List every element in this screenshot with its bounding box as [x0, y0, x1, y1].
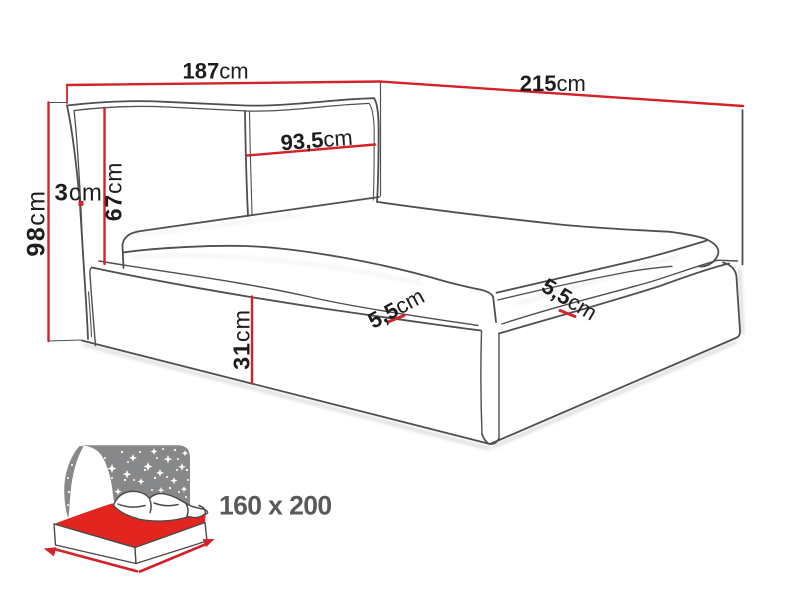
svg-text:31cm: 31cm: [229, 309, 255, 370]
svg-text:3cm: 3cm: [55, 180, 103, 207]
svg-text:67cm: 67cm: [101, 162, 127, 221]
svg-text:98cm: 98cm: [23, 189, 51, 256]
svg-text:215cm: 215cm: [520, 71, 586, 96]
svg-text:187cm: 187cm: [182, 59, 248, 84]
svg-text:160 x 200: 160 x 200: [219, 491, 332, 521]
